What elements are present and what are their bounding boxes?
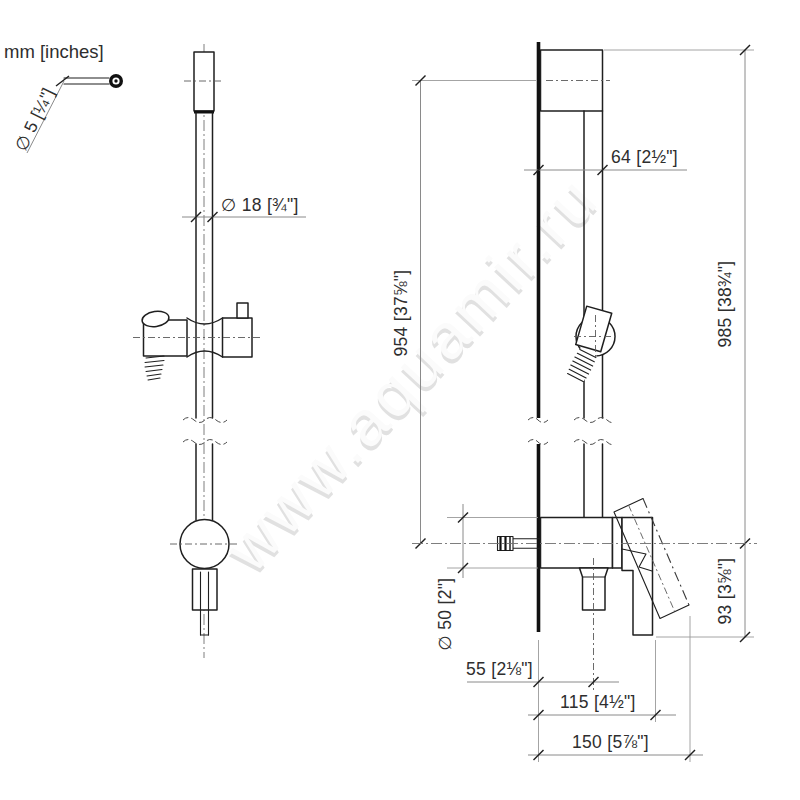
technical-drawing-page: www.aquamir.ru www.aquamir.ru xyxy=(0,0,800,800)
slider-lock-knob xyxy=(237,303,248,318)
holder-spring xyxy=(145,356,164,380)
rail-top-cap xyxy=(194,52,214,111)
break-line-wall xyxy=(528,418,548,423)
dim-rosette-diameter: ∅ 50 [2"] xyxy=(435,578,455,651)
slider-holder-side xyxy=(565,306,618,385)
cartridge-ring xyxy=(613,518,623,569)
fixing-screw-icon xyxy=(64,74,123,88)
side-view-shower-rail xyxy=(498,42,690,690)
dim-handle-projection: 115 [4½"] xyxy=(560,692,636,712)
dim-holder-offset: 64 [2½"] xyxy=(611,147,678,167)
clamp-top-edge xyxy=(187,318,223,324)
slider-holder-front xyxy=(133,303,263,380)
dim-overall-height: 985 [38¾"] xyxy=(715,260,735,347)
clamp-bottom-edge xyxy=(187,351,223,357)
lever-bracket xyxy=(622,518,653,636)
break-line xyxy=(183,440,227,445)
dim-handle-drop: 93 [3⅝"] xyxy=(715,558,735,625)
outlet-bracket-front xyxy=(193,569,218,610)
break-line-wall xyxy=(528,440,548,445)
dim-bar-height: 954 [37⅝"] xyxy=(391,269,411,356)
dim-max-projection: 150 [5⅞"] xyxy=(572,732,649,752)
shower-set-technical-drawing: www.aquamir.ru www.aquamir.ru xyxy=(0,0,800,800)
units-note: mm [inches] xyxy=(4,41,104,62)
break-line xyxy=(574,418,612,423)
break-line xyxy=(183,418,227,423)
dim-rail-diameter: ∅ 18 [¾"] xyxy=(221,195,299,215)
break-line xyxy=(574,440,612,445)
dim-screw-diameter: ∅ 5 [¼"] xyxy=(11,85,59,155)
mixer-body xyxy=(541,518,613,569)
dim-outlet-offset: 55 [2⅛"] xyxy=(466,659,533,679)
